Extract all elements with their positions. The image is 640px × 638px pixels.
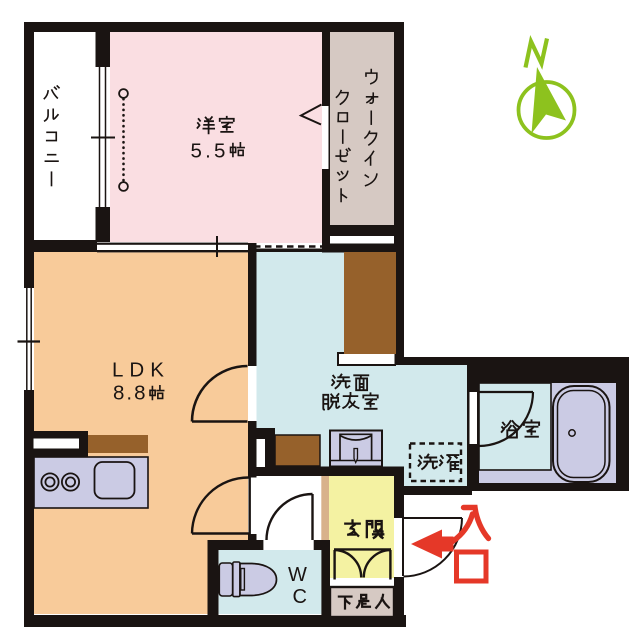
svg-text:5.5: 5.5: [191, 140, 229, 163]
svg-text:C: C: [293, 586, 307, 608]
svg-text:8.8: 8.8: [113, 382, 148, 405]
svg-text:W: W: [288, 564, 307, 586]
svg-text:LDK: LDK: [112, 359, 170, 382]
